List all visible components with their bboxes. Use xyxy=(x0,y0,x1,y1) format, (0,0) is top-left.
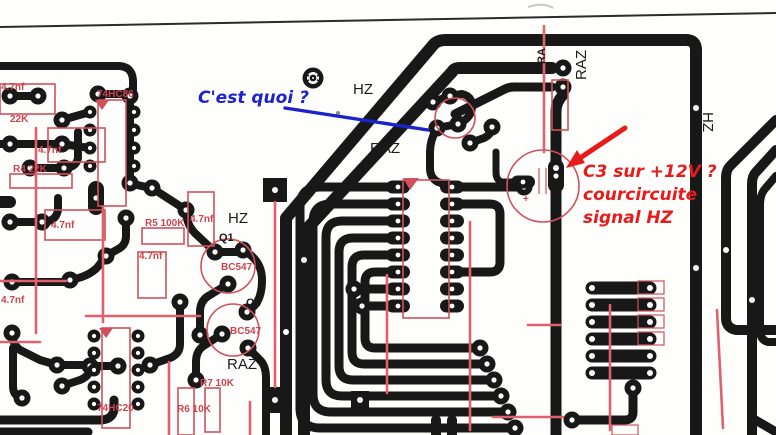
label-cap-plus: + xyxy=(523,194,529,205)
label-r-top: 22K xyxy=(10,114,29,125)
label-q1: Q1 xyxy=(219,232,234,244)
label-raz-vertical: RAZ xyxy=(573,50,590,80)
red-annotation-line2: courcircuite xyxy=(583,185,697,205)
pin1-marker xyxy=(99,328,113,338)
label-q2-type: BC547 xyxy=(230,326,262,337)
mounting-hole xyxy=(303,68,324,89)
label-raz-mid: RAZ xyxy=(370,140,400,157)
red-annotation-line1: C3 sur +12V ? xyxy=(583,162,717,182)
red-annotation-line3: signal HZ xyxy=(583,208,674,228)
label-r5: R5 100K xyxy=(145,218,185,229)
scan-paper-edge xyxy=(0,5,776,27)
label-cap-a: 4.7nf xyxy=(1,82,25,93)
pin1-marker xyxy=(95,100,109,110)
label-raz-bottom: RAZ xyxy=(227,356,257,373)
label-hz-top: HZ xyxy=(353,81,373,98)
label-cap-c: 4.7nf xyxy=(51,220,75,231)
label-cap-e: 4.7nf xyxy=(139,251,163,262)
label-r4: R4 22K xyxy=(13,164,48,175)
label-cap-d: 4.7nf xyxy=(190,214,214,225)
red-arrow-shaft xyxy=(580,128,625,158)
label-q1-type: BC547 xyxy=(221,262,253,273)
label-hz-left: HZ xyxy=(228,210,248,227)
label-q2: Q2 xyxy=(246,297,261,309)
label-r7: R7 10K xyxy=(200,378,235,389)
label-hz-right: HZ xyxy=(699,112,716,132)
label-ic2: 74HC20 xyxy=(97,403,134,414)
label-ic1: 74HC86 xyxy=(97,89,134,100)
label-cap-f: 4.7nf xyxy=(1,295,25,306)
label-r6: R6 10K xyxy=(177,404,212,415)
label-cap-b: 4.7nf xyxy=(38,145,62,156)
blue-annotation-text: C'est quoi ? xyxy=(198,88,309,108)
scan-smudge xyxy=(528,5,553,8)
pcb-scan-page: 4.7nf 22K 74HC86 4.7nf R4 22K 4.7nf 4.7n… xyxy=(0,0,776,435)
label-ra-vertical: RA xyxy=(536,48,548,64)
pcb-layout-drawing: 4.7nf 22K 74HC86 4.7nf R4 22K 4.7nf 4.7n… xyxy=(0,0,776,435)
